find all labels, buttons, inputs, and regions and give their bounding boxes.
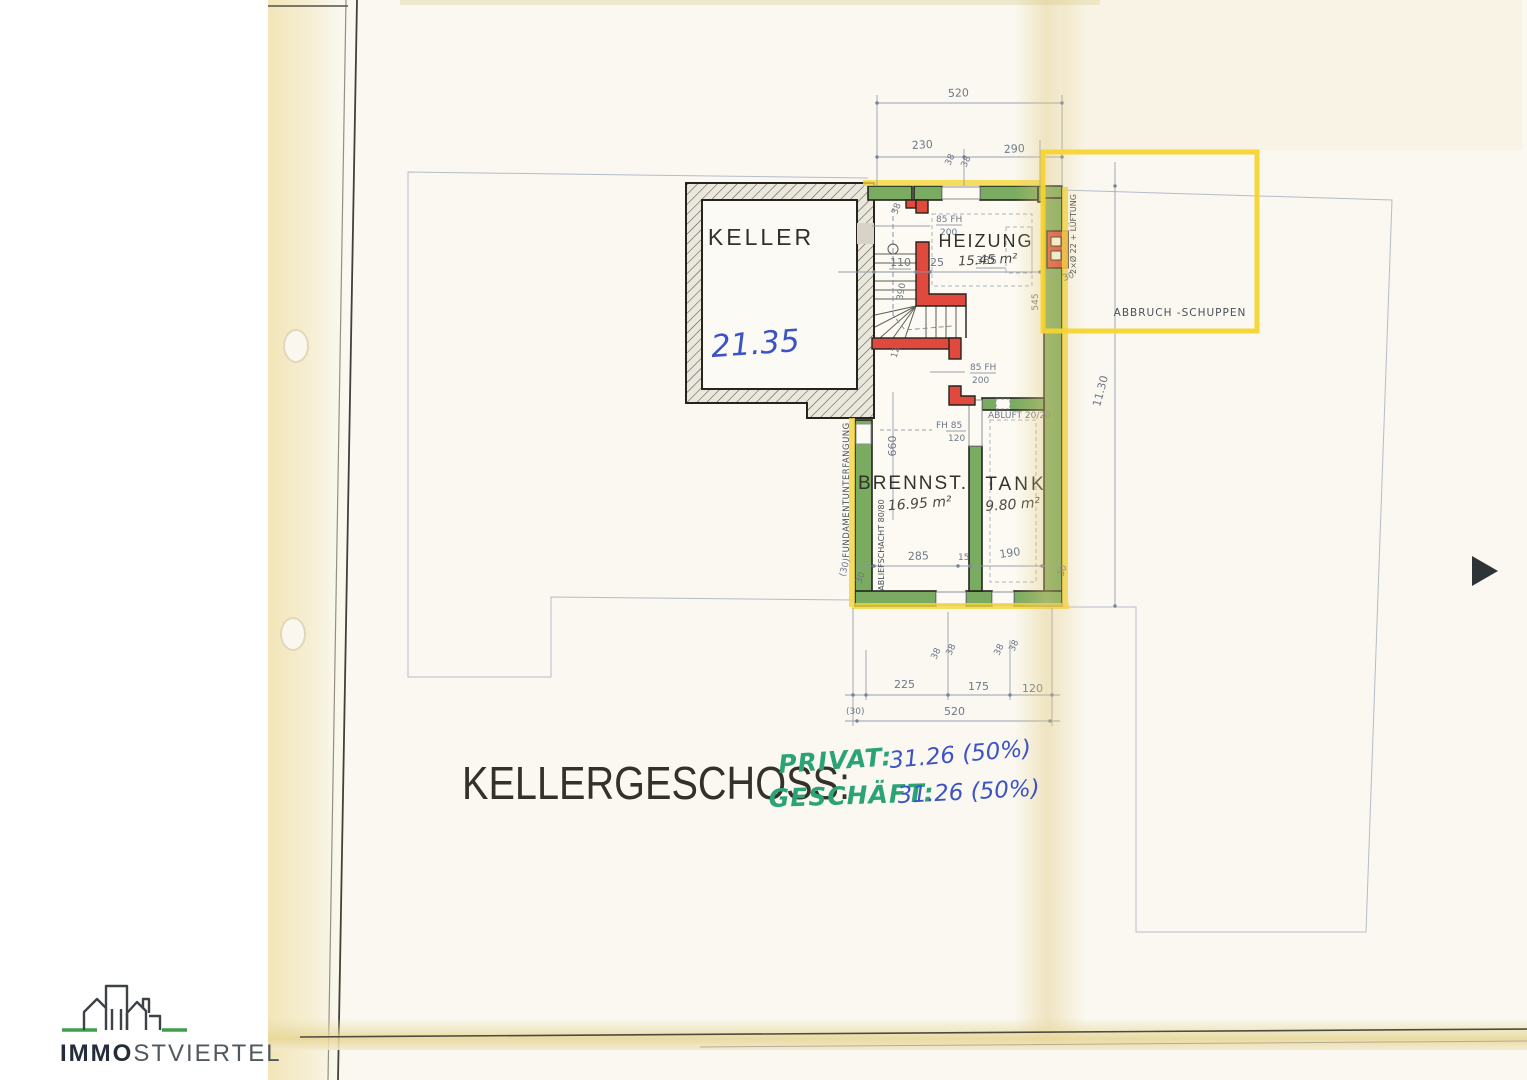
wall-top-1: [868, 186, 912, 200]
scanned-floorplan-page: 520 230 290 38 38 38 110 25 385 30 545 3…: [0, 0, 1527, 1080]
logo-text-bold: IMMO: [60, 1040, 133, 1067]
wall-partition: [969, 446, 982, 591]
red-pier-top: [906, 200, 916, 208]
dim-top-230: 230: [911, 138, 933, 152]
red-wall-lower: [872, 338, 960, 349]
schuppen-label: ABBRUCH -SCHUPPEN: [1114, 307, 1247, 319]
red-corner-upper: [949, 338, 961, 359]
abluft-opening: [996, 399, 1010, 409]
dim-110: 110: [890, 256, 911, 269]
keller-handwritten-area: 21.35: [710, 323, 801, 365]
punch-hole-bottom: [281, 618, 305, 650]
label-abliefschacht: ABLIEFSCHACHT 80/80: [877, 499, 886, 590]
dim-520-bot: 520: [944, 705, 965, 718]
partition-door-opening: [969, 400, 982, 446]
dim-285: 285: [908, 549, 929, 563]
label-fenster: FH 85: [936, 421, 962, 431]
label-fenster-hoehe: 120: [948, 434, 965, 444]
floorplan-canvas: 520 230 290 38 38 38 110 25 385 30 545 3…: [0, 0, 1527, 1080]
window-top-opening: [942, 187, 980, 199]
label-tuer-mitte-hoehe: 200: [972, 376, 989, 386]
dim-25: 25: [930, 256, 944, 269]
top-right-tint: [1062, 0, 1522, 150]
top-edge-band: [400, 0, 1100, 5]
dim-top-520: 520: [948, 86, 969, 100]
room-brennstoff-label: BRENNST.: [858, 473, 968, 494]
keller-door-opening: [857, 223, 874, 244]
dim-660: 660: [886, 436, 899, 457]
paper-background: [0, 0, 1527, 1080]
dim-175: 175: [968, 680, 989, 693]
keller-structure: [686, 183, 874, 418]
label-fundament: FUNDAMENTUNTERFANGUNG: [842, 422, 852, 558]
dim-225: 225: [894, 678, 915, 691]
left-wall-window: [856, 424, 871, 444]
punch-hole-top: [284, 330, 308, 362]
room-heizung-area: 15.45 m²: [958, 251, 1018, 269]
label-tuer-oben: 85 FH: [936, 215, 962, 225]
dim-15: 15: [958, 553, 969, 563]
wall-top-2: [914, 186, 942, 200]
room-keller-label: KELLER: [708, 224, 814, 250]
dim-30-paren: (30): [846, 707, 864, 717]
logo-wordmark: IMMOSTVIERTEL: [60, 1040, 282, 1067]
logo-text-light: STVIERTEL: [133, 1040, 281, 1067]
red-wall-stair-top: [916, 200, 928, 213]
fold-band: [1014, 0, 1086, 1045]
label-tuer-mitte: 85 FH: [970, 363, 996, 373]
